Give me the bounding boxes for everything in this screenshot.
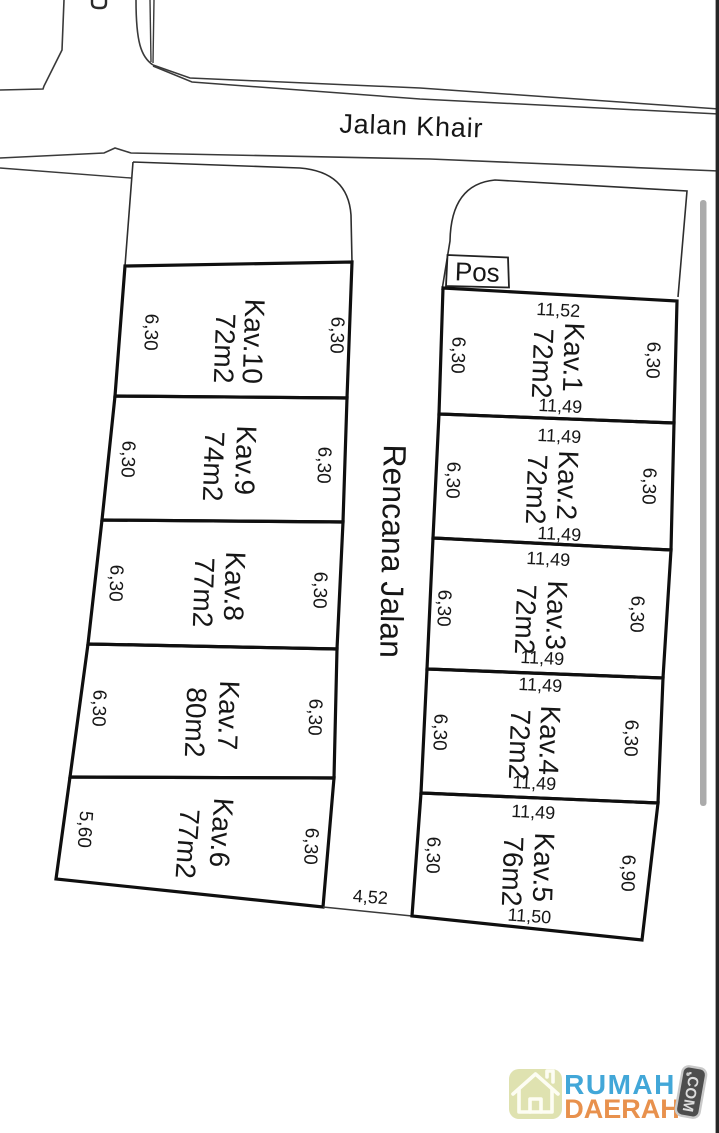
svg-text:6,30: 6,30: [441, 461, 463, 499]
svg-text:Kav.8: Kav.8: [218, 551, 251, 622]
svg-text:Kav.5: Kav.5: [527, 832, 560, 903]
svg-text:6,30: 6,30: [325, 316, 347, 354]
svg-text:4,52: 4,52: [352, 886, 388, 908]
svg-text:11,49: 11,49: [537, 523, 582, 545]
svg-text:77m2: 77m2: [187, 557, 220, 628]
svg-text:11,50: 11,50: [507, 905, 552, 928]
svg-text:6,30: 6,30: [625, 595, 647, 633]
svg-text:72m2: 72m2: [509, 584, 542, 655]
svg-text:6,30: 6,30: [116, 440, 138, 478]
svg-text:Kav.7: Kav.7: [212, 680, 245, 751]
svg-text:6,30: 6,30: [641, 341, 663, 379]
svg-text:6,30: 6,30: [637, 467, 659, 505]
svg-text:11,49: 11,49: [526, 548, 571, 570]
svg-text:5,60: 5,60: [73, 810, 97, 848]
svg-text:76m2: 76m2: [496, 836, 529, 907]
svg-text:6,30: 6,30: [312, 446, 334, 484]
svg-text:Kav.4: Kav.4: [533, 705, 566, 776]
svg-text:74m2: 74m2: [197, 431, 230, 502]
svg-text:6,30: 6,30: [299, 827, 322, 865]
svg-text:Kav.2: Kav.2: [551, 450, 584, 521]
svg-text:6,30: 6,30: [87, 689, 109, 727]
svg-text:11,49: 11,49: [512, 772, 557, 794]
svg-text:6,30: 6,30: [432, 589, 454, 627]
svg-text:Jalan Khair: Jalan Khair: [339, 109, 484, 144]
svg-text:72m2: 72m2: [503, 709, 536, 780]
svg-text:72m2: 72m2: [520, 454, 553, 525]
svg-text:Kav.1: Kav.1: [557, 322, 590, 393]
svg-text:11,49: 11,49: [518, 674, 563, 696]
svg-text:6,30: 6,30: [303, 698, 325, 736]
svg-text:6,30: 6,30: [619, 719, 641, 757]
svg-text:77m2: 77m2: [170, 808, 206, 880]
svg-text:6,30: 6,30: [308, 571, 330, 609]
svg-text:Kav.9: Kav.9: [229, 425, 262, 496]
svg-text:11,49: 11,49: [537, 425, 582, 447]
svg-text:Kav.10: Kav.10: [237, 298, 271, 384]
svg-text:DAERAH: DAERAH: [564, 1094, 680, 1124]
svg-text:6,30: 6,30: [428, 713, 450, 751]
svg-text:Rencana Jalan: Rencana Jalan: [373, 444, 413, 658]
svg-text:6,30: 6,30: [104, 564, 126, 602]
svg-text:Kav.6: Kav.6: [204, 797, 240, 869]
svg-text:80m2: 80m2: [179, 687, 212, 758]
svg-text:6,30: 6,30: [139, 313, 161, 351]
svg-text:Kav.3: Kav.3: [540, 580, 573, 651]
svg-text:6,90: 6,90: [616, 854, 638, 892]
svg-text:11,49: 11,49: [520, 647, 565, 669]
svg-text:6,30: 6,30: [446, 336, 468, 374]
svg-text:72m2: 72m2: [208, 313, 241, 384]
svg-text:72m2: 72m2: [526, 328, 559, 399]
svg-text:11,49: 11,49: [511, 801, 556, 823]
svg-text:Pos: Pos: [454, 256, 500, 288]
svg-text:6,30: 6,30: [421, 836, 443, 874]
svg-text:11,52: 11,52: [536, 299, 581, 321]
svg-text:11,49: 11,49: [538, 395, 583, 417]
